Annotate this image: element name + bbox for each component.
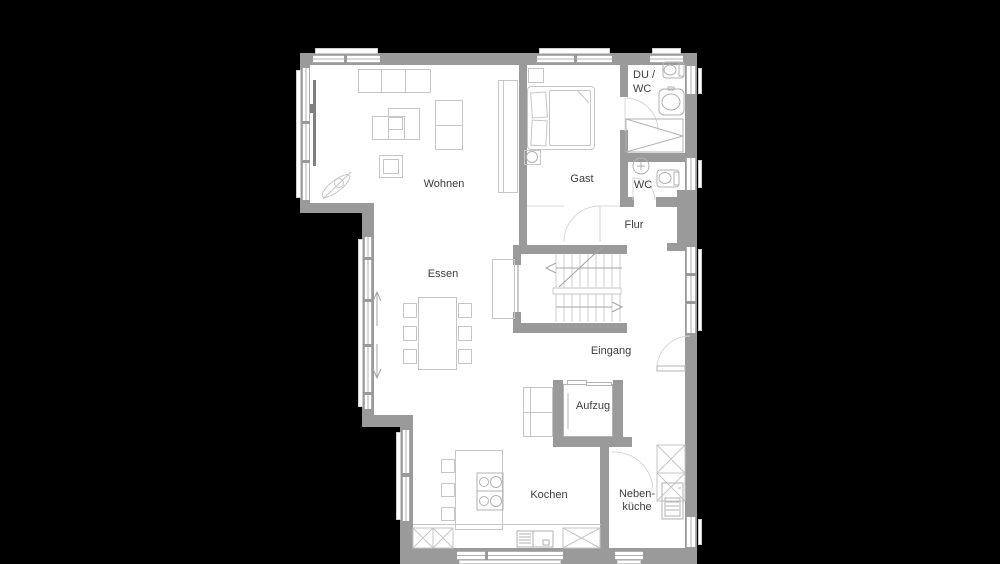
duwc-door-arc <box>625 98 658 131</box>
duwc-toilet <box>663 62 684 78</box>
nebenkueche-door-arc <box>612 452 653 490</box>
sliding-window-arrows <box>373 292 381 378</box>
entrance-door-arc <box>657 336 690 369</box>
room-label-nebenkueche-2: küche <box>622 501 651 514</box>
plant <box>319 171 353 201</box>
room-label-kochen: Kochen <box>530 489 567 502</box>
duwc-sink <box>659 87 684 115</box>
room-label-wc: WC <box>634 179 652 192</box>
room-label-essen: Essen <box>428 268 459 281</box>
cooktop <box>477 473 503 510</box>
kitchen-sink <box>517 531 553 547</box>
floor-plan: Wohnen Gast DU / WC WC Flur Essen Eingan… <box>0 0 1000 564</box>
room-label-nebenkueche-1: Neben- <box>619 488 655 501</box>
stair-arrow-up-head <box>546 263 556 273</box>
room-label-gast: Gast <box>570 173 593 186</box>
blanket-fold <box>577 90 589 103</box>
room-label-wohnen: Wohnen <box>424 178 465 191</box>
staircase <box>546 247 622 322</box>
stair-rail <box>553 288 621 294</box>
room-label-duwc-2: WC <box>633 83 651 96</box>
wc-sink <box>633 158 649 174</box>
entrance-door-leaf <box>657 366 685 371</box>
room-label-eingang: Eingang <box>591 345 631 358</box>
lamp <box>527 152 538 163</box>
shower <box>626 119 683 152</box>
room-label-flur: Flur <box>625 219 644 232</box>
linework-overlay <box>0 0 1000 564</box>
gast-door-arc <box>564 206 600 242</box>
wc-toilet <box>657 170 679 187</box>
room-label-aufzug: Aufzug <box>576 400 610 413</box>
room-label-duwc-1: DU / <box>633 69 655 82</box>
